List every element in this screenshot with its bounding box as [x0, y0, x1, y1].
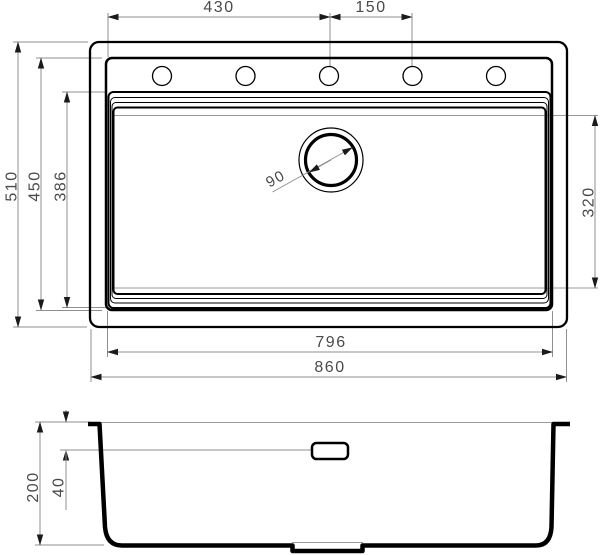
dim-200-label: 200	[25, 471, 42, 502]
plan-view: 90 430 150 510 450 386 320 796 860	[4, 0, 599, 382]
drawing-canvas: 90 430 150 510 450 386 320 796 860	[0, 0, 600, 555]
faucet-hole	[236, 67, 255, 86]
dim-drain-label: 90	[263, 167, 288, 191]
faucet-hole	[487, 67, 506, 86]
section-extension-lines	[35, 422, 312, 545]
dim-386-label: 386	[53, 170, 70, 201]
overflow-hole	[312, 443, 348, 459]
faucet-hole	[320, 67, 339, 86]
plan-dimensions: 430 150 510 450 386 320 796 860	[4, 0, 598, 377]
dim-796-label: 796	[315, 334, 346, 351]
faucet-hole	[403, 67, 422, 86]
faucet-holes	[153, 67, 506, 86]
dim-510-label: 510	[4, 170, 21, 201]
drain: 90	[263, 128, 363, 192]
sink-technical-drawing: 90 430 150 510 450 386 320 796 860	[0, 0, 600, 555]
drain-diameter-arrow	[309, 160, 331, 172]
dim-450-label: 450	[27, 170, 44, 201]
dim-150-label: 150	[355, 0, 386, 16]
section-view: 200 40	[25, 410, 570, 551]
dim-320-label: 320	[581, 186, 598, 217]
dim-40-label: 40	[51, 477, 68, 498]
dim-860-label: 860	[314, 359, 345, 376]
dim-430-label: 430	[203, 0, 234, 16]
bowl-edge-outer	[109, 92, 551, 308]
faucet-hole	[153, 67, 172, 86]
section-dimensions: 200 40	[25, 410, 68, 545]
bowl-step-2	[112, 103, 547, 299]
